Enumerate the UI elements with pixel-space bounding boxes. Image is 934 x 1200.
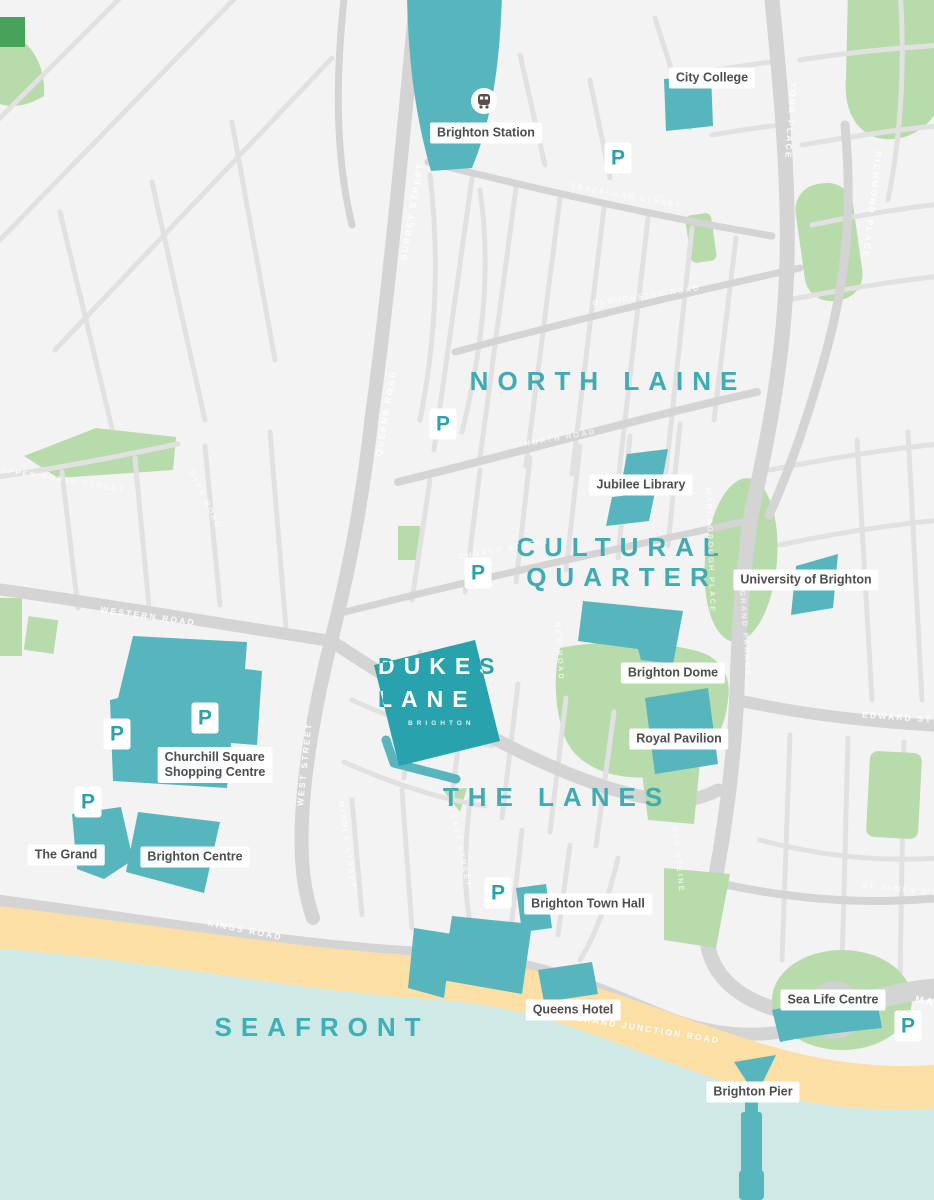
logo-line2: LANE: [378, 683, 502, 716]
road-queens-road-west-street: [301, 0, 417, 918]
district-label-the-lanes: THE LANES: [443, 782, 671, 812]
parking-letter: P: [491, 881, 505, 905]
poi-label-brighton-centre[interactable]: Brighton Centre: [140, 847, 249, 868]
poi-label-brighton-pier[interactable]: Brighton Pier: [706, 1082, 799, 1103]
building-jubilee-library[interactable]: [606, 492, 655, 526]
poi-label-the-grand[interactable]: The Grand: [28, 845, 105, 866]
district-label-line: QUARTER: [516, 562, 728, 592]
logo-tagline: BRIGHTON: [408, 720, 502, 727]
park-dark: [0, 17, 25, 47]
district-label-seafront: SEAFRONT: [215, 1012, 430, 1042]
building-brighton-station[interactable]: [407, 0, 502, 171]
park: [0, 598, 22, 656]
parking-letter: P: [110, 722, 124, 746]
parking-icon[interactable]: P: [605, 143, 632, 174]
map-base: [0, 0, 934, 1200]
building: [442, 916, 532, 994]
poi-label-brighton-town-hall[interactable]: Brighton Town Hall: [524, 894, 652, 915]
poi-label-queens-hotel[interactable]: Queens Hotel: [526, 1000, 621, 1021]
poi-label-brighton-dome[interactable]: Brighton Dome: [621, 663, 725, 684]
poi-label-line: Churchill Square: [165, 750, 266, 765]
parking-letter: P: [436, 412, 450, 436]
building-brighton-pier[interactable]: [739, 1170, 764, 1200]
poi-label-line: Shopping Centre: [165, 765, 266, 780]
poi-label-royal-pavilion[interactable]: Royal Pavilion: [629, 729, 728, 750]
park: [846, 0, 934, 139]
road-gloucester-road: [455, 268, 800, 352]
parking-icon[interactable]: P: [895, 1011, 922, 1042]
road: [338, 0, 352, 225]
brighton-map: SURREY STREET QUEENS ROAD WEST STREET WE…: [0, 0, 934, 1200]
parking-letter: P: [901, 1014, 915, 1038]
parking-letter: P: [471, 561, 485, 585]
parking-icon[interactable]: P: [430, 409, 457, 440]
parking-icon[interactable]: P: [104, 719, 131, 750]
parking-icon[interactable]: P: [75, 787, 102, 818]
parking-icon[interactable]: P: [485, 878, 512, 909]
parking-letter: P: [611, 146, 625, 170]
parking-letter: P: [198, 706, 212, 730]
poi-label-brighton-station[interactable]: Brighton Station: [430, 123, 542, 144]
park: [866, 751, 922, 840]
poi-label-sea-life-centre[interactable]: Sea Life Centre: [780, 990, 885, 1011]
park: [24, 616, 58, 654]
park: [664, 868, 730, 948]
parking-icon[interactable]: P: [465, 558, 492, 589]
poi-label-jubilee-library[interactable]: Jubilee Library: [590, 475, 693, 496]
building-the-grand[interactable]: [72, 807, 133, 879]
poi-label-city-college[interactable]: City College: [669, 68, 755, 89]
poi-label-university-of-brighton[interactable]: University of Brighton: [733, 570, 878, 591]
train-icon: [471, 88, 497, 114]
building-brighton-pier[interactable]: [741, 1112, 762, 1174]
parking-icon[interactable]: P: [192, 703, 219, 734]
district-label-north-laine: NORTH LAINE: [470, 366, 747, 396]
parking-letter: P: [81, 790, 95, 814]
poi-label-churchill-square[interactable]: Churchill Square Shopping Centre: [158, 747, 273, 783]
